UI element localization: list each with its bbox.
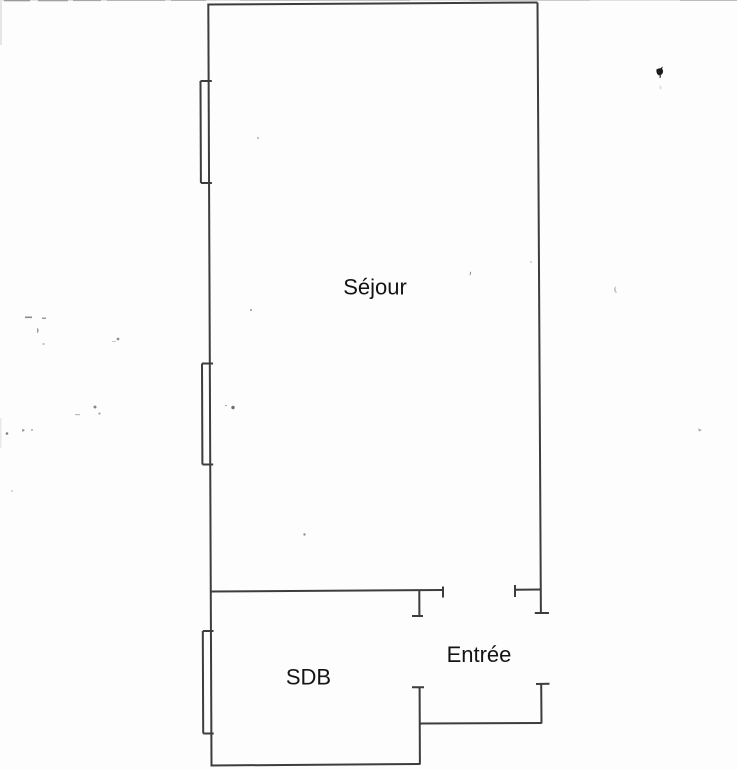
svg-text:Séjour: Séjour <box>343 275 407 300</box>
svg-text:SDB: SDB <box>286 665 331 690</box>
svg-text:Entrée: Entrée <box>447 642 512 667</box>
